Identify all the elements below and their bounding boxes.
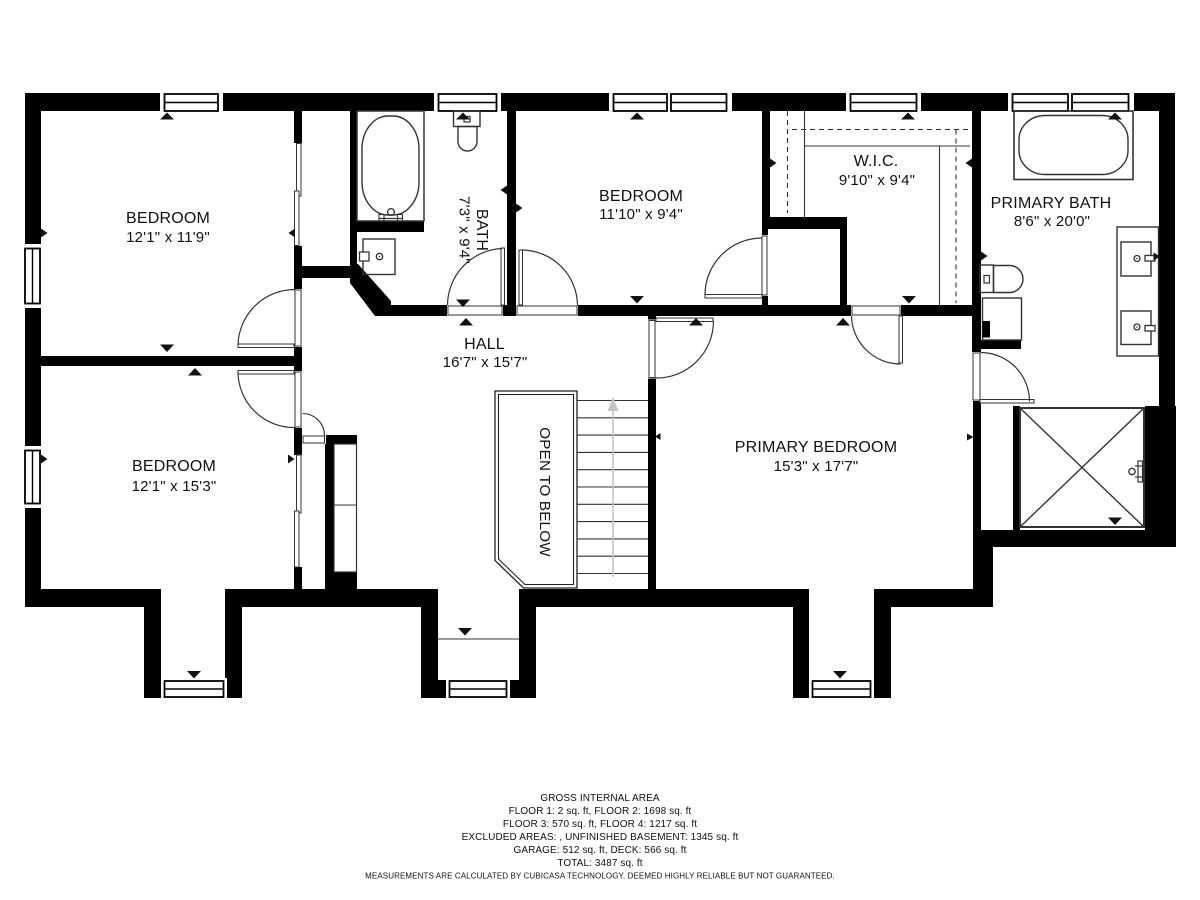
svg-text:FLOOR 3: 570 sq. ft, FLOOR 4:: FLOOR 3: 570 sq. ft, FLOOR 4: 1217 sq. f… xyxy=(503,819,697,830)
svg-text:12'1" x 15'3": 12'1" x 15'3" xyxy=(132,478,217,495)
svg-text:MEASUREMENTS ARE CALCULATED BY: MEASUREMENTS ARE CALCULATED BY CUBICASA … xyxy=(365,872,835,881)
svg-text:W.I.C.: W.I.C. xyxy=(854,153,899,170)
svg-text:9'10" x 9'4": 9'10" x 9'4" xyxy=(839,172,915,189)
svg-text:BATH: BATH xyxy=(473,209,490,251)
svg-text:7'3" x 9'4": 7'3" x 9'4" xyxy=(456,196,473,264)
svg-text:BEDROOM: BEDROOM xyxy=(126,210,210,227)
svg-text:16'7" x 15'7": 16'7" x 15'7" xyxy=(443,354,528,371)
svg-text:11'10" x 9'4": 11'10" x 9'4" xyxy=(599,206,683,223)
svg-text:12'1" x 11'9": 12'1" x 11'9" xyxy=(126,229,210,246)
svg-text:TOTAL: 3487 sq. ft: TOTAL: 3487 sq. ft xyxy=(557,858,642,869)
svg-text:EXCLUDED AREAS: , UNFINISHED B: EXCLUDED AREAS: , UNFINISHED BASEMENT: 1… xyxy=(462,832,739,843)
svg-text:GARAGE: 512 sq. ft, DECK: 566: GARAGE: 512 sq. ft, DECK: 566 sq. ft xyxy=(513,845,686,856)
svg-text:HALL: HALL xyxy=(464,336,505,353)
svg-text:GROSS INTERNAL AREA: GROSS INTERNAL AREA xyxy=(540,793,660,804)
svg-text:BEDROOM: BEDROOM xyxy=(599,188,683,205)
svg-text:15'3" x 17'7": 15'3" x 17'7" xyxy=(774,458,859,475)
svg-text:PRIMARY BATH: PRIMARY BATH xyxy=(991,195,1112,212)
svg-text:PRIMARY BEDROOM: PRIMARY BEDROOM xyxy=(735,439,897,456)
svg-text:FLOOR 1: 2 sq. ft, FLOOR 2: 16: FLOOR 1: 2 sq. ft, FLOOR 2: 1698 sq. ft xyxy=(509,806,692,817)
svg-text:8'6" x 20'0": 8'6" x 20'0" xyxy=(1014,213,1090,230)
svg-text:OPEN TO BELOW: OPEN TO BELOW xyxy=(536,427,553,557)
svg-text:BEDROOM: BEDROOM xyxy=(132,458,216,475)
